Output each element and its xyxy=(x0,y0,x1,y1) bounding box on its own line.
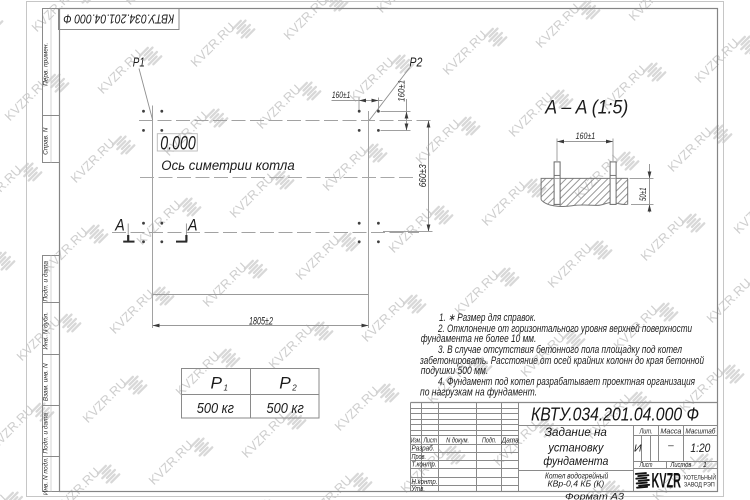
svg-text:Задание на: Задание на xyxy=(545,427,607,439)
svg-text:И: И xyxy=(634,442,642,454)
svg-text:Взам. инв. N: Взам. инв. N xyxy=(42,363,49,401)
svg-text:50±1: 50±1 xyxy=(638,187,649,201)
svg-text:1: 1 xyxy=(703,460,707,469)
svg-text:A: A xyxy=(114,217,124,235)
svg-text:P2: P2 xyxy=(409,56,422,70)
svg-text:–: – xyxy=(667,441,674,452)
svg-text:P1: P1 xyxy=(133,56,145,70)
svg-text:Ось симетрии котла: Ось симетрии котла xyxy=(161,157,295,173)
svg-text:Подп.: Подп. xyxy=(482,437,497,445)
svg-text:фундамента: фундамента xyxy=(543,456,608,468)
svg-text:Подп. и дата: Подп. и дата xyxy=(41,261,49,302)
svg-text:KVZR: KVZR xyxy=(652,469,682,492)
svg-text:Инв. N дубл.: Инв. N дубл. xyxy=(41,312,49,350)
svg-text:500 кг: 500 кг xyxy=(197,401,234,417)
svg-text:ЗАВОД РЭП: ЗАВОД РЭП xyxy=(684,481,715,488)
svg-text:Дата: Дата xyxy=(501,438,519,445)
svg-text:КВр-0,4 КБ (К): КВр-0,4 КБ (К) xyxy=(548,480,605,489)
svg-text:Перв. примен.: Перв. примен. xyxy=(42,43,49,86)
svg-text:160±1: 160±1 xyxy=(332,90,351,101)
svg-text:Лист: Лист xyxy=(423,438,437,445)
svg-text:1: 1 xyxy=(224,383,228,392)
svg-text:Лист: Лист xyxy=(639,460,653,469)
svg-text:160±1: 160±1 xyxy=(576,131,596,142)
svg-text:Разраб.: Разраб. xyxy=(412,445,435,453)
svg-text:Масштаб: Масштаб xyxy=(685,426,716,435)
svg-text:Т.контр.: Т.контр. xyxy=(412,462,437,469)
svg-text:Изм.: Изм. xyxy=(411,438,422,445)
svg-text:Масса: Масса xyxy=(660,426,681,435)
svg-text:Формат А3: Формат А3 xyxy=(565,492,625,500)
svg-text:A – A (1:5): A – A (1:5) xyxy=(544,97,628,118)
svg-text:Листов: Листов xyxy=(670,460,692,469)
svg-text:N докум.: N докум. xyxy=(446,437,469,445)
svg-text:Н.контр.: Н.контр. xyxy=(412,479,438,486)
svg-text:Подп. и дата: Подп. и дата xyxy=(41,413,49,454)
svg-text:КОТЕЛЬНЫЙ: КОТЕЛЬНЫЙ xyxy=(684,472,716,481)
svg-text:1805±2: 1805±2 xyxy=(249,315,273,327)
svg-text:Лит.: Лит. xyxy=(639,426,653,435)
svg-text:Справ. N: Справ. N xyxy=(42,127,49,155)
svg-text:по нагрузкам на фундамент.: по нагрузкам на фундамент. xyxy=(420,386,537,398)
svg-text:660±3: 660±3 xyxy=(417,164,429,187)
svg-text:установку: установку xyxy=(547,443,604,455)
svg-text:2: 2 xyxy=(291,383,297,392)
svg-text:P: P xyxy=(279,374,291,392)
svg-text:1:20: 1:20 xyxy=(690,443,711,455)
svg-text:КВТУ.034.201.04.000 Ф: КВТУ.034.201.04.000 Ф xyxy=(63,11,174,25)
svg-text:500 кг: 500 кг xyxy=(267,401,304,417)
svg-text:P: P xyxy=(211,374,223,392)
svg-text:Инв. N подл.: Инв. N подл. xyxy=(41,457,49,495)
svg-text:A: A xyxy=(187,217,197,235)
svg-text:КВТУ.034.201.04.000 Ф: КВТУ.034.201.04.000 Ф xyxy=(531,404,699,425)
svg-text:Пров.: Пров. xyxy=(412,454,427,461)
svg-text:0.000: 0.000 xyxy=(160,133,196,154)
svg-text:Утв.: Утв. xyxy=(411,486,425,493)
